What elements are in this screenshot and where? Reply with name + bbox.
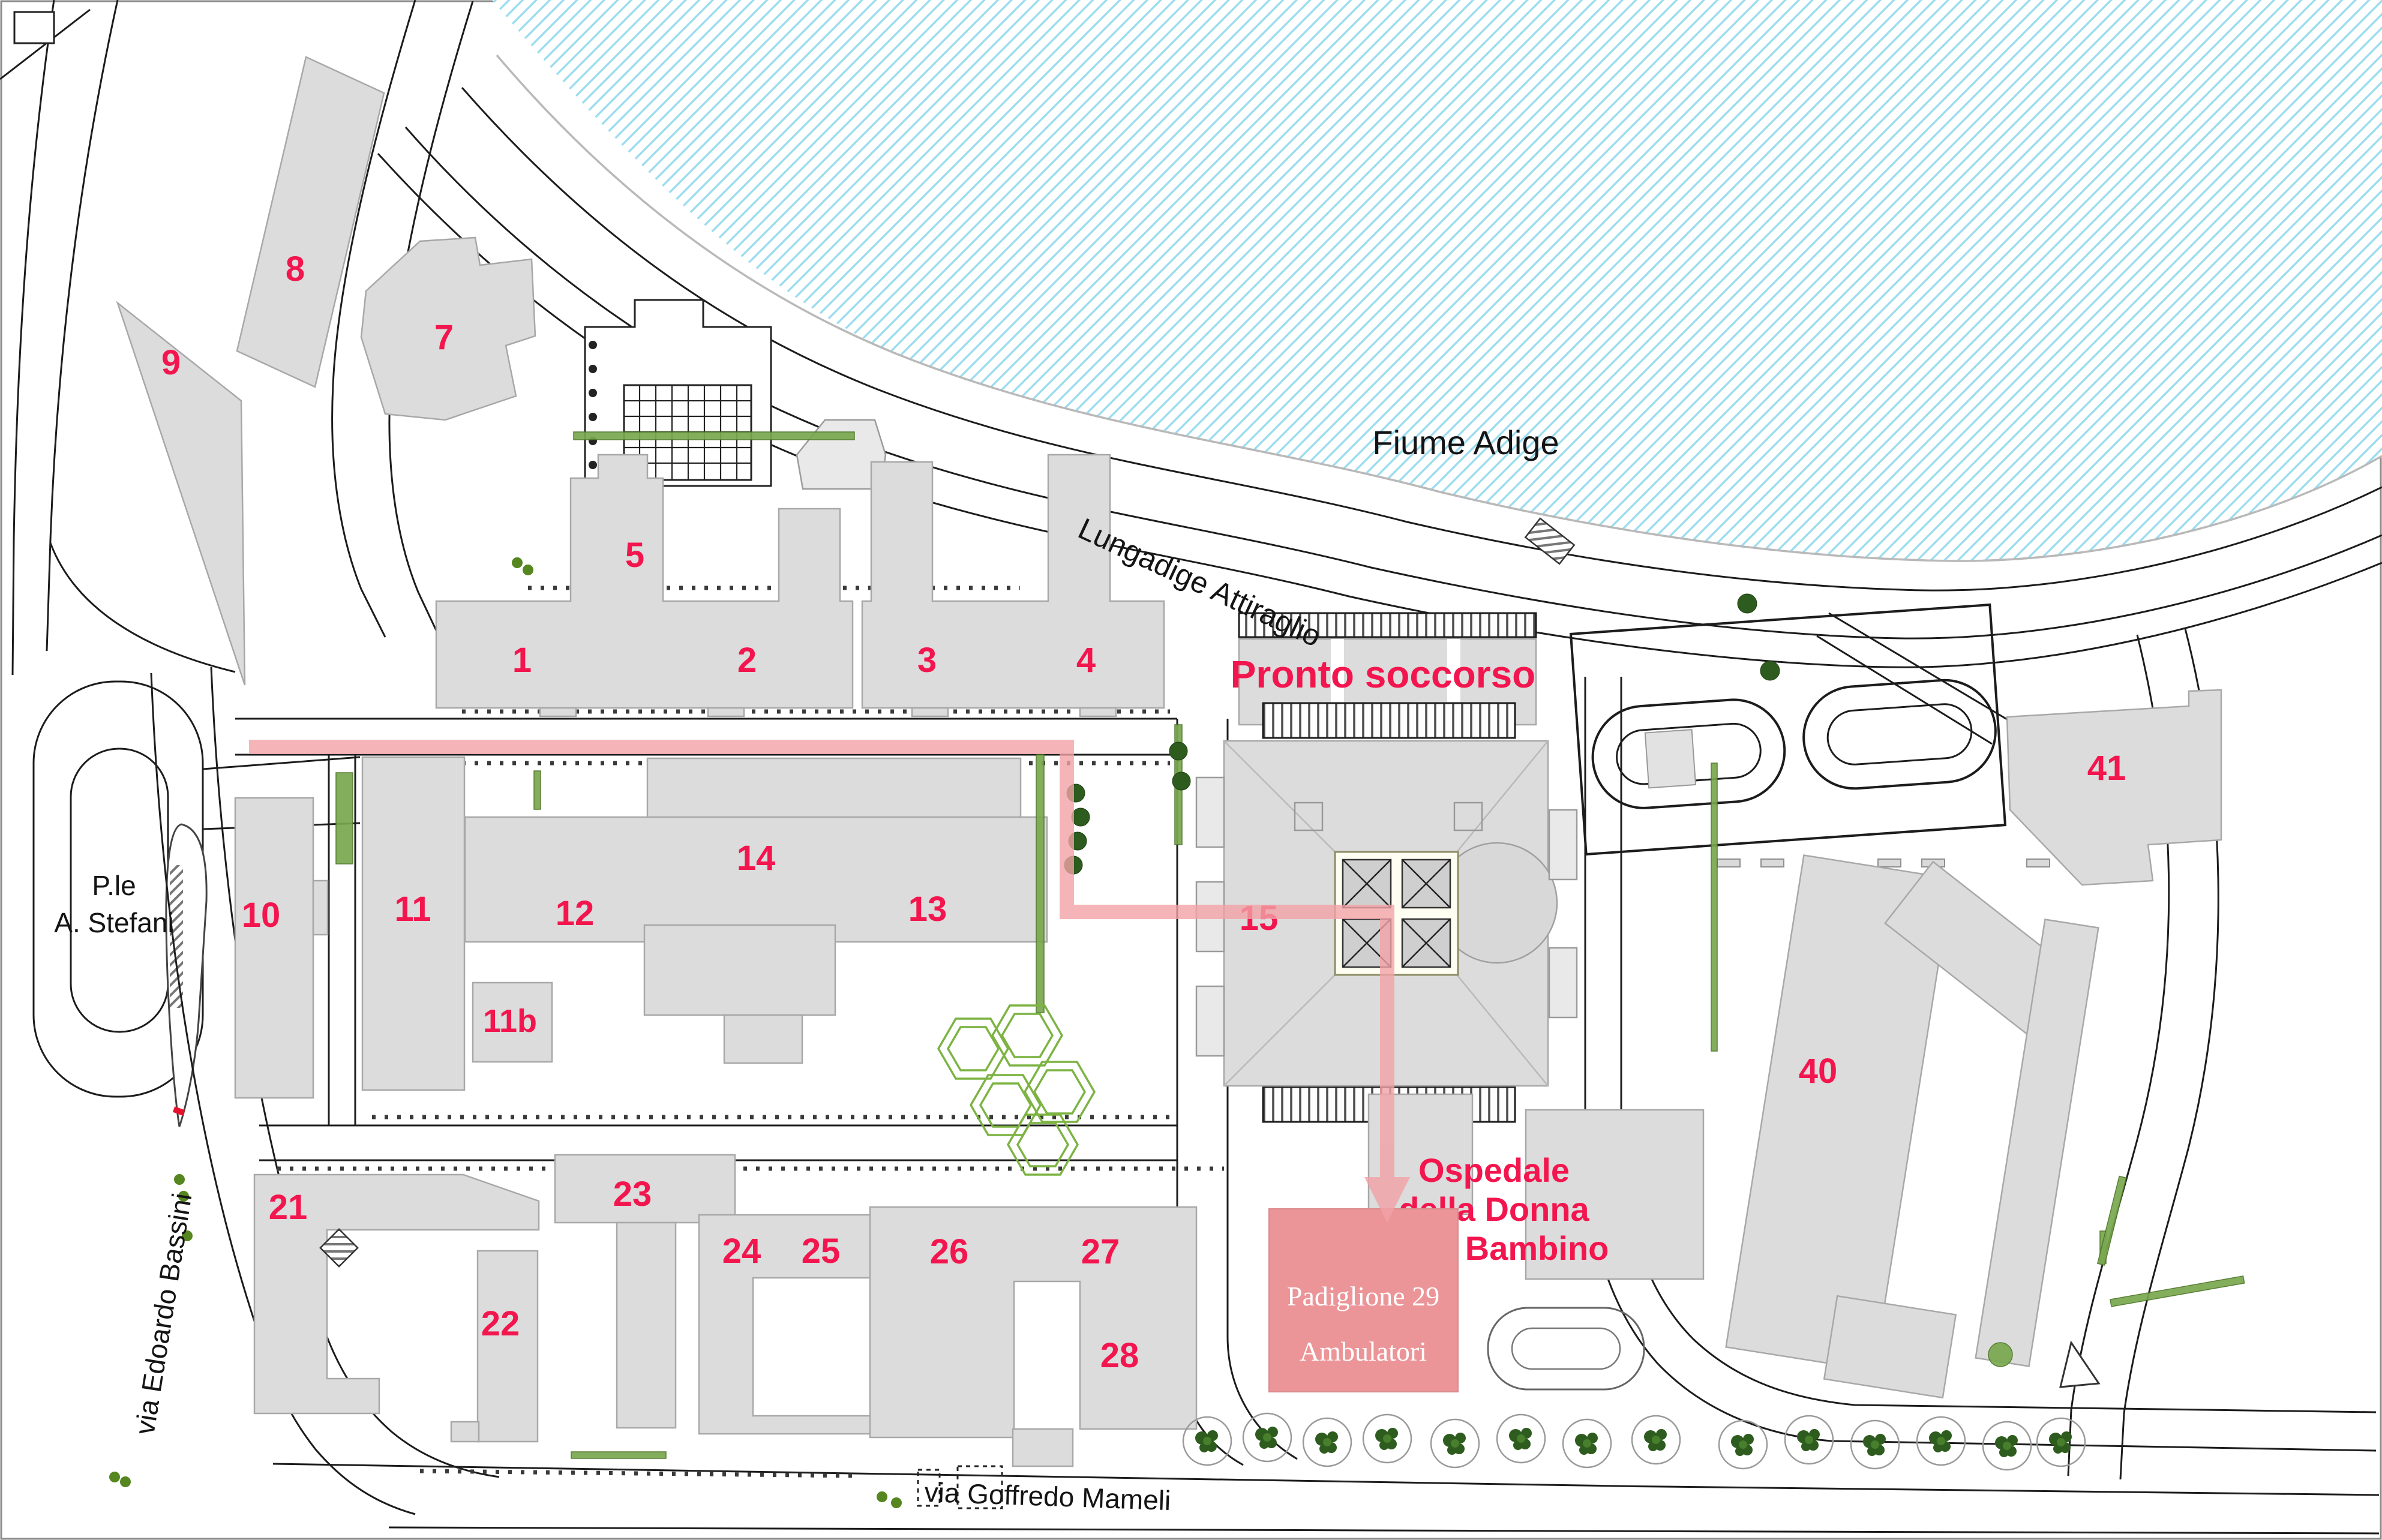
label-pavilion-title: Padiglione 29	[1287, 1281, 1439, 1311]
green-blob	[1988, 1343, 2012, 1367]
label-building-4: 4	[1076, 641, 1096, 680]
label-building-21: 21	[269, 1188, 308, 1227]
hedge-strip-1	[1036, 755, 1044, 1013]
hedge-strip-3	[1711, 763, 1717, 1051]
map-canvas: Fiume Adige Lungadige Attiraglio P.le A.…	[0, 0, 2382, 1540]
building-12-south-wing	[644, 925, 835, 1015]
building-12-south-tail	[724, 1015, 802, 1063]
label-building-7: 7	[434, 318, 454, 357]
label-square-line1: P.le	[92, 870, 136, 901]
label-pavilion-subtitle: Ambulatori	[1300, 1336, 1427, 1367]
label-building-25: 25	[802, 1232, 841, 1271]
label-building-8: 8	[286, 250, 305, 289]
building-10-bump	[313, 881, 328, 935]
hedge-strip-4	[574, 432, 854, 440]
building-22	[478, 1251, 538, 1442]
label-building-28: 28	[1100, 1336, 1139, 1375]
building-23-leg	[617, 1223, 676, 1428]
building-14-wing	[647, 758, 1021, 820]
label-building-14: 14	[737, 839, 776, 878]
hedge-strip-7	[571, 1452, 666, 1458]
label-building-22: 22	[481, 1304, 520, 1343]
label-building-1: 1	[512, 641, 532, 680]
building-22-foot	[451, 1422, 479, 1442]
label-building-9: 9	[161, 343, 181, 382]
label-building-10: 10	[242, 896, 281, 935]
label-building-2: 2	[737, 641, 757, 680]
label-building-5: 5	[625, 536, 644, 575]
label-building-41: 41	[2087, 749, 2126, 788]
label-building-12: 12	[556, 894, 595, 933]
building-12-13-slab	[465, 817, 1047, 942]
building-15-canopy-top	[1263, 703, 1515, 738]
label-building-24: 24	[722, 1232, 761, 1271]
corner-structure	[14, 12, 54, 43]
label-building-11: 11	[394, 890, 431, 929]
label-building-23: 23	[613, 1175, 652, 1214]
building-10	[235, 798, 313, 1098]
building-28-tail	[1013, 1429, 1073, 1466]
hedge-strip-6	[534, 771, 541, 809]
hospital-campus-map: Fiume Adige Lungadige Attiraglio P.le A.…	[0, 0, 2382, 1540]
label-building-26: 26	[930, 1232, 969, 1271]
label-building-27: 27	[1081, 1232, 1120, 1271]
label-square-line2: A. Stefani	[54, 907, 173, 938]
label-river: Fiume Adige	[1372, 424, 1559, 461]
hedge-strip-5	[336, 773, 353, 864]
label-building-11b: 11b	[483, 1003, 537, 1039]
label-building-3: 3	[917, 641, 937, 680]
label-building-40: 40	[1799, 1052, 1838, 1091]
label-building-13: 13	[908, 890, 947, 929]
label-destination-line1: Ospedale	[1418, 1151, 1570, 1189]
label-pronto-soccorso: Pronto soccorso	[1231, 653, 1536, 696]
